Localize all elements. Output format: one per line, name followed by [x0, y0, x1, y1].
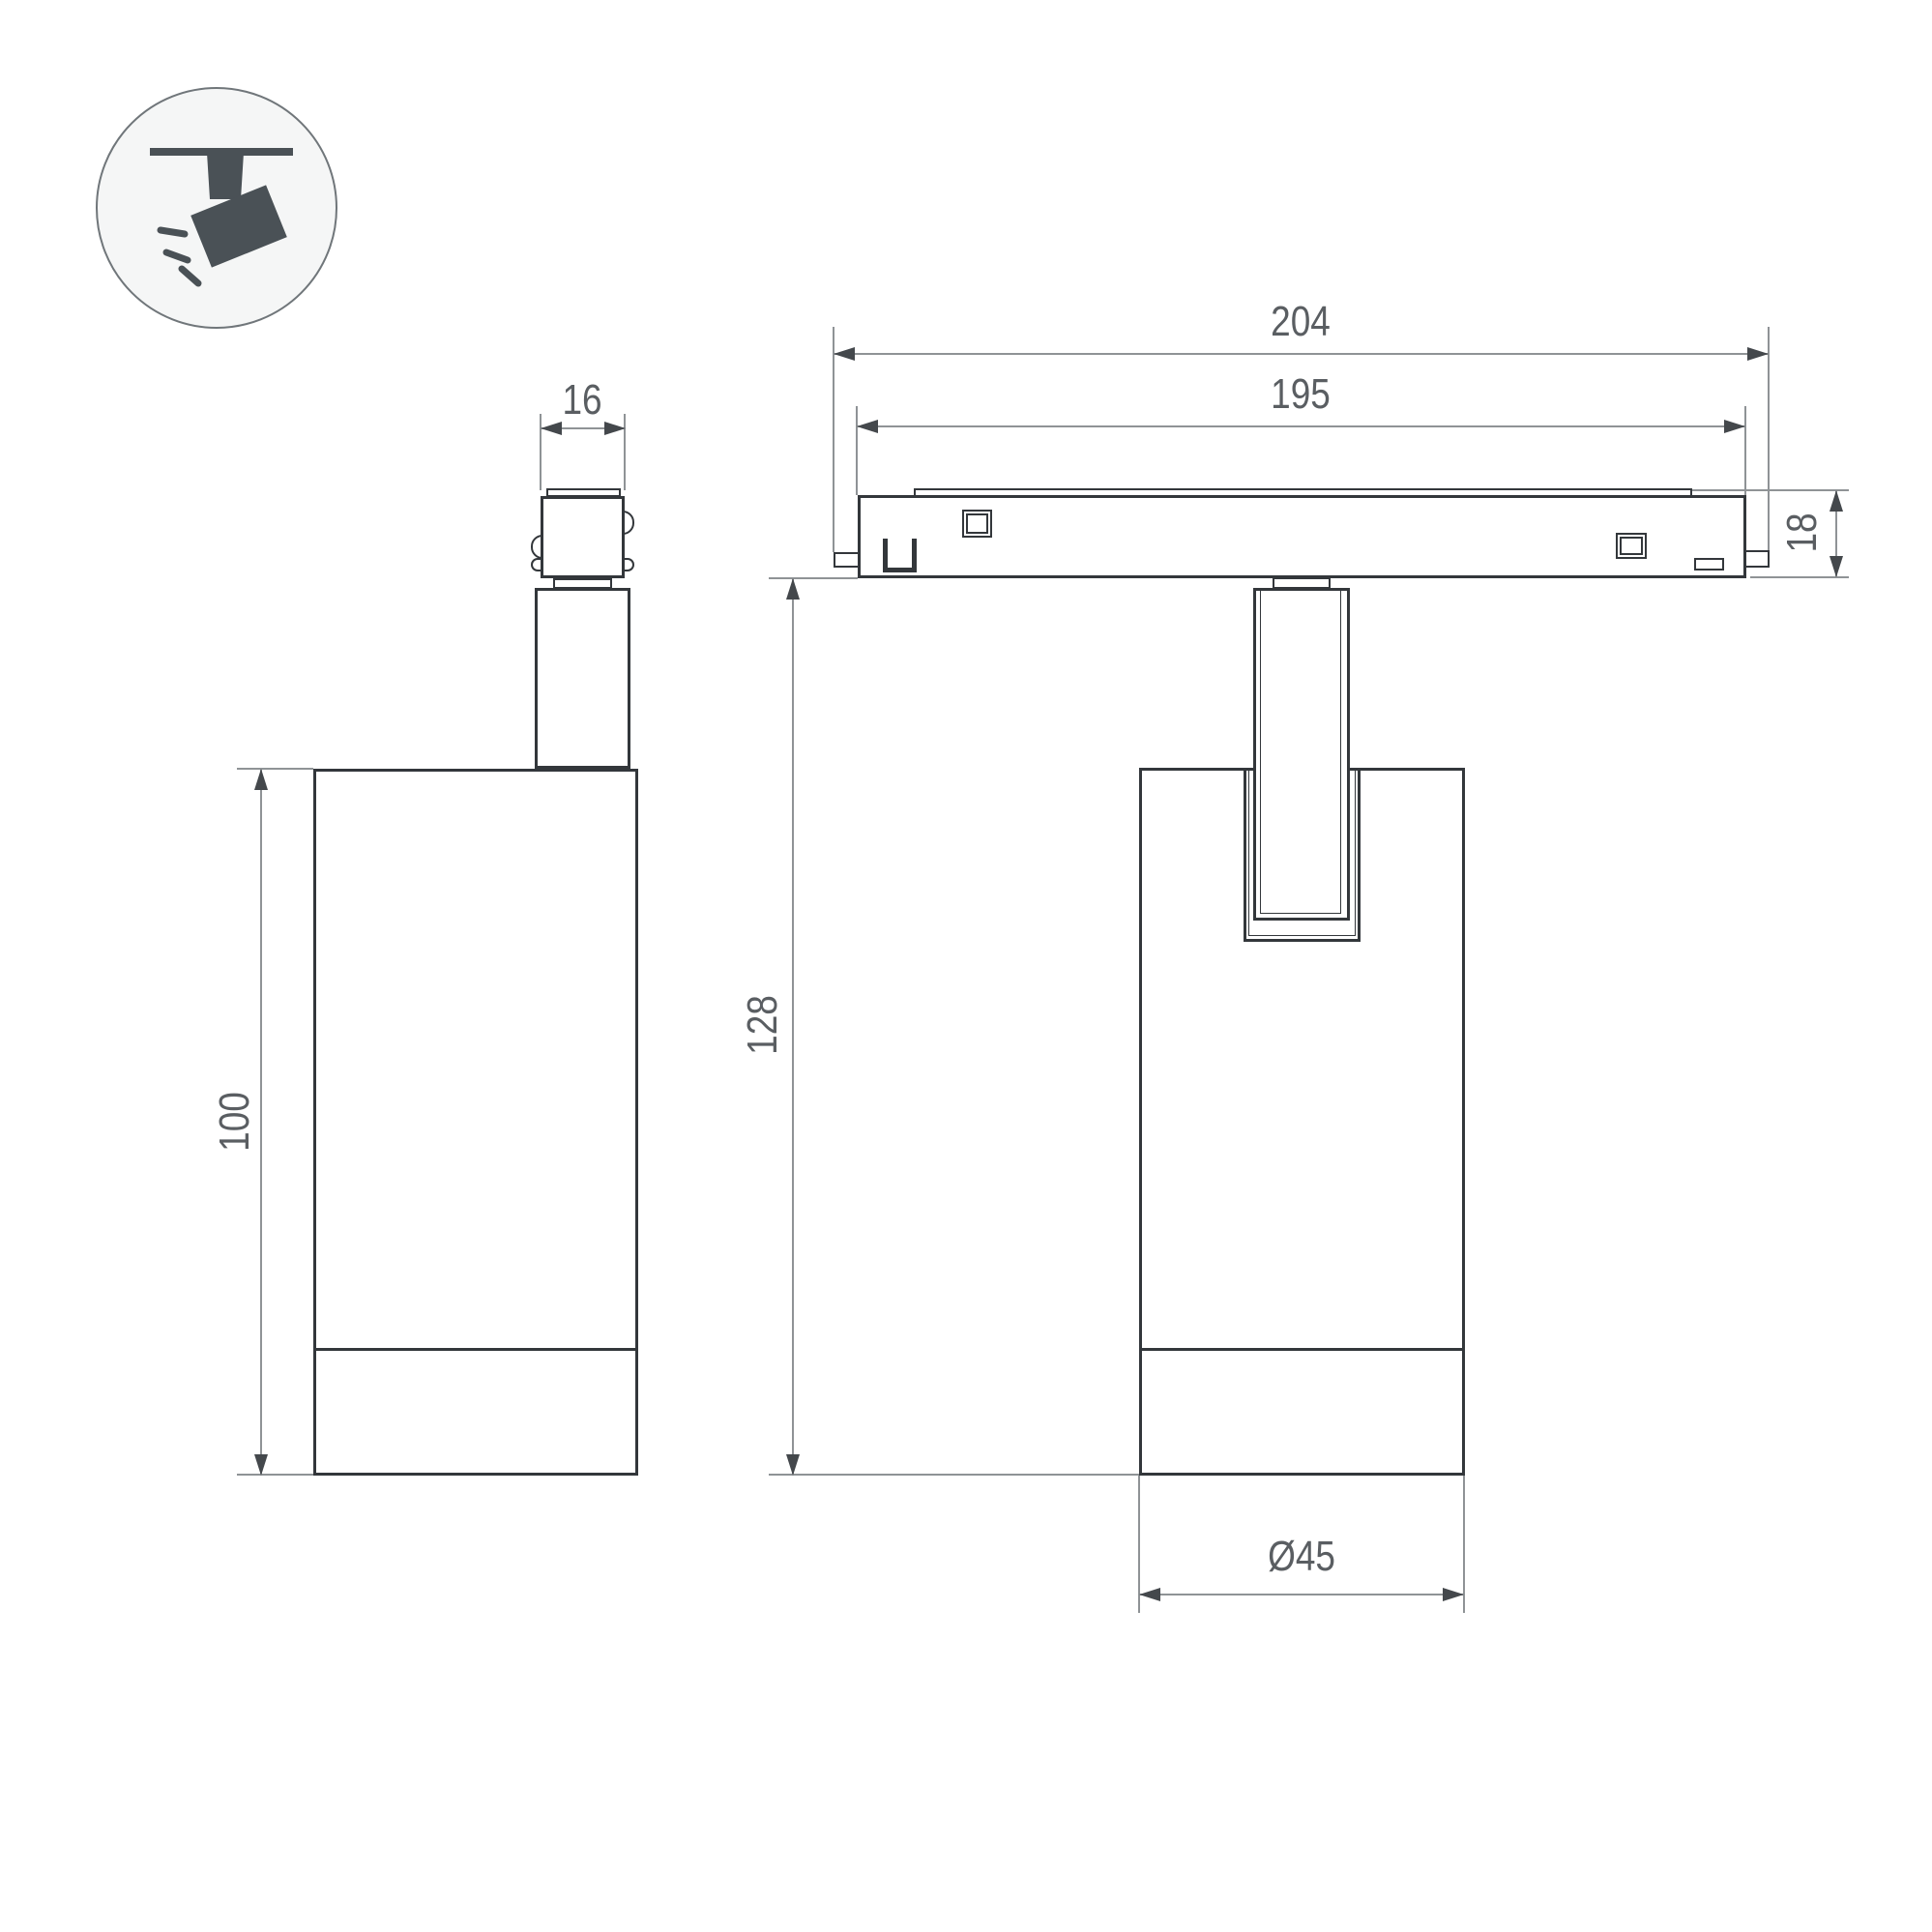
front-stem — [1253, 588, 1350, 921]
arrowhead-128-top — [786, 578, 800, 600]
icon-light-rays — [161, 230, 198, 283]
track-hole-right — [1616, 533, 1647, 559]
arrowhead-d45-left — [1139, 1588, 1160, 1601]
dim-label-100: 100 — [214, 1092, 256, 1152]
track-hole-right-inner-line — [1620, 537, 1643, 555]
track-end-tab-left — [834, 552, 860, 568]
dim-line-100 — [260, 769, 262, 1476]
arrowhead-16-right — [604, 422, 626, 435]
track-clip-u — [883, 539, 917, 572]
track-spotlight-icon — [96, 87, 337, 329]
dim-label-204: 204 — [1271, 301, 1331, 343]
arrowhead-204-right — [1747, 347, 1769, 361]
ext-line-128-top — [769, 577, 858, 579]
dim-label-195: 195 — [1271, 373, 1331, 416]
track-hole-left — [962, 510, 992, 538]
dim-label-128: 128 — [742, 995, 784, 1055]
arrowhead-d45-right — [1443, 1588, 1464, 1601]
arrowhead-16-left — [541, 422, 562, 435]
ext-line-204-right — [1768, 327, 1770, 553]
dim-label-18: 18 — [1781, 512, 1824, 552]
track-end-tab-right — [1744, 550, 1770, 568]
dim-line-195 — [857, 425, 1745, 427]
side-stem — [535, 588, 630, 769]
dimension-drawing-canvas: 16 100 204 195 18 128 Ø45 — [0, 0, 1932, 1932]
arrowhead-100-bottom — [254, 1454, 268, 1476]
dim-line-128 — [792, 578, 794, 1476]
ext-line-100-bottom — [237, 1474, 313, 1476]
dim-line-d45 — [1139, 1594, 1464, 1595]
arrowhead-204-left — [834, 347, 855, 361]
arrowhead-195-right — [1724, 420, 1745, 433]
icon-stem — [207, 153, 244, 199]
icon-lamp-body — [190, 185, 287, 267]
arrowhead-18-bottom — [1830, 556, 1843, 577]
arrowhead-128-bottom — [786, 1454, 800, 1476]
front-stem-collar — [1273, 577, 1331, 589]
ext-line-128-bottom — [769, 1474, 1139, 1476]
dim-line-204 — [834, 353, 1769, 355]
side-adapter-block — [541, 496, 625, 578]
ext-line-18-top — [1692, 489, 1849, 491]
dim-label-d45: Ø45 — [1268, 1536, 1335, 1578]
side-lamp-trim-line — [313, 1348, 638, 1351]
arrowhead-100-top — [254, 769, 268, 790]
ext-line-100-top — [237, 768, 313, 770]
arrowhead-195-left — [857, 420, 878, 433]
arrowhead-18-top — [1830, 490, 1843, 512]
track-hole-left-inner-line — [966, 513, 988, 534]
side-lamp-body — [313, 769, 638, 1476]
front-lamp-trim-line — [1139, 1348, 1465, 1351]
track-slot-small — [1694, 558, 1724, 571]
dim-label-16: 16 — [562, 379, 601, 422]
front-stem-inner-line — [1260, 591, 1341, 914]
